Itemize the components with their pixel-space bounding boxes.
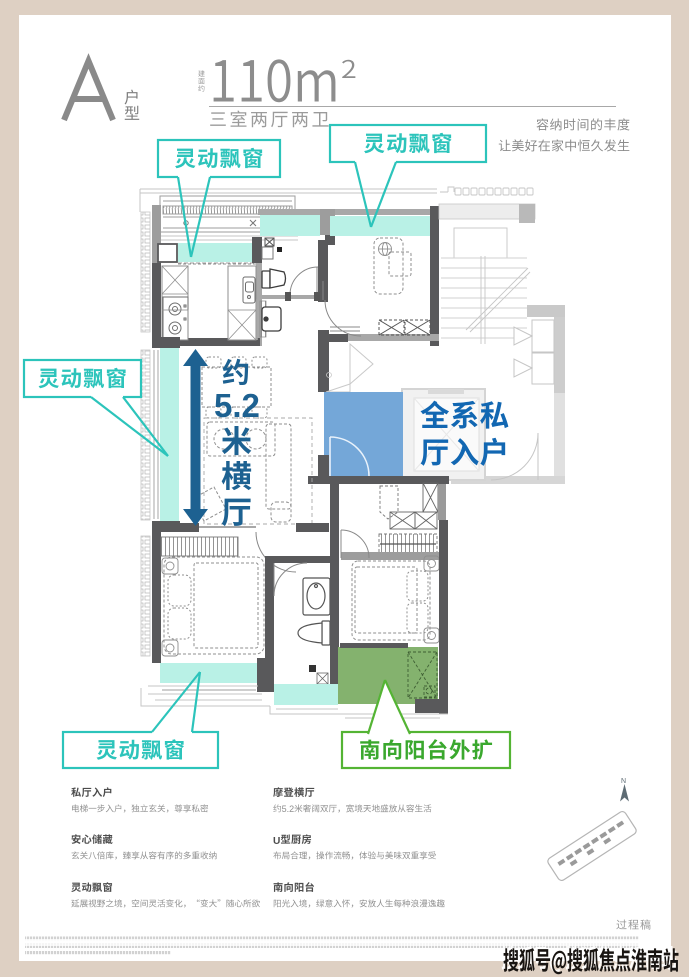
- svg-text:N: N: [621, 778, 626, 785]
- svg-text:2: 2: [289, 804, 294, 814]
- svg-text:U: U: [273, 836, 280, 847]
- svg-text:5.2: 5.2: [214, 387, 260, 424]
